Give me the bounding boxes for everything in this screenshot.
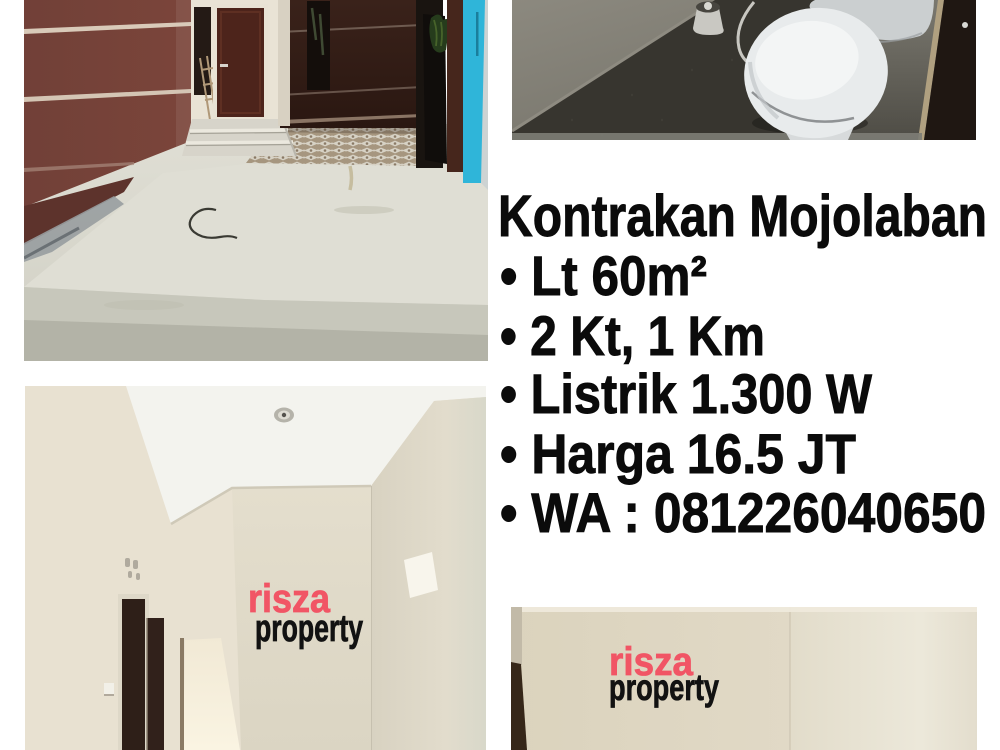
svg-text:property: property [609,667,719,708]
svg-text:Kontrakan Mojolaban: Kontrakan Mojolaban [498,185,987,249]
svg-text:• Harga 16.5 JT: • Harga 16.5 JT [500,422,856,485]
svg-text:property: property [255,608,363,650]
svg-text:• Listrik 1.300 W: • Listrik 1.300 W [500,362,872,425]
svg-text:• 2 Kt, 1 Km: • 2 Kt, 1 Km [500,304,765,367]
svg-text:• WA : 081226040650: • WA : 081226040650 [500,481,986,544]
svg-text:• Lt 60m²: • Lt 60m² [500,244,707,307]
